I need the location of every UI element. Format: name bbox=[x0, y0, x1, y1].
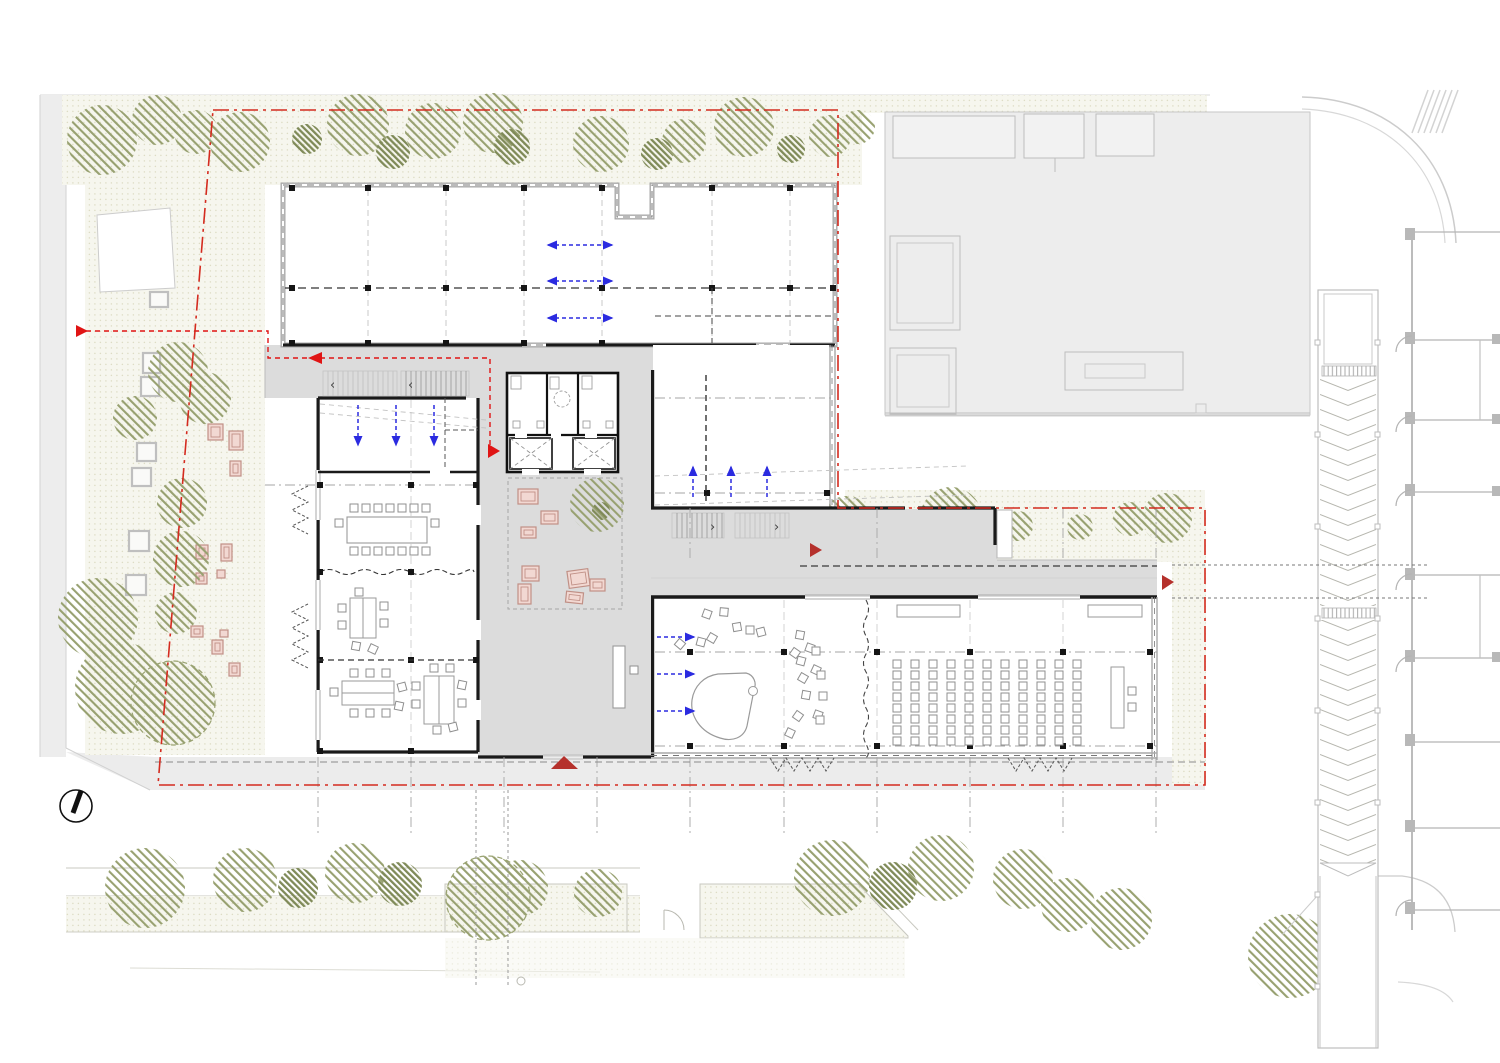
column-marker bbox=[781, 743, 787, 749]
seat bbox=[1055, 737, 1063, 745]
seat bbox=[947, 726, 955, 734]
tree-icon bbox=[494, 129, 530, 165]
column-marker bbox=[824, 490, 830, 496]
outdoor-lounge-furniture bbox=[217, 570, 225, 578]
column-marker bbox=[408, 748, 414, 754]
seat bbox=[965, 671, 973, 679]
column-marker bbox=[709, 185, 715, 191]
seat bbox=[801, 690, 810, 699]
column-marker bbox=[289, 285, 295, 291]
seat bbox=[1055, 715, 1063, 723]
tree-icon bbox=[1090, 888, 1152, 950]
neighbor-building-north bbox=[885, 112, 1310, 416]
column-marker bbox=[874, 743, 880, 749]
outdoor-lounge-furniture bbox=[230, 461, 241, 476]
column-marker bbox=[1147, 743, 1153, 749]
tree-icon bbox=[292, 124, 322, 154]
seat bbox=[374, 504, 382, 512]
stair-direction-arrow: › bbox=[774, 520, 779, 535]
column-marker bbox=[1147, 649, 1153, 655]
seat bbox=[1055, 726, 1063, 734]
seat bbox=[350, 504, 358, 512]
seat bbox=[911, 715, 919, 723]
seat bbox=[1001, 704, 1009, 712]
seat bbox=[382, 709, 390, 717]
seat bbox=[1001, 715, 1009, 723]
outdoor-lounge-furniture bbox=[191, 626, 203, 637]
seat bbox=[965, 715, 973, 723]
tree-icon bbox=[378, 862, 422, 906]
seat bbox=[458, 699, 466, 707]
seat bbox=[382, 669, 390, 677]
conference-table bbox=[347, 517, 427, 543]
seat bbox=[1019, 715, 1027, 723]
seat bbox=[911, 682, 919, 690]
column-marker bbox=[687, 649, 693, 655]
tree-icon bbox=[1142, 493, 1192, 543]
column-marker bbox=[787, 185, 793, 191]
seat bbox=[911, 704, 919, 712]
seat bbox=[893, 693, 901, 701]
seat bbox=[422, 547, 430, 555]
tree-icon bbox=[213, 848, 277, 912]
column-marker bbox=[704, 490, 710, 496]
outdoor-lounge-furniture bbox=[221, 544, 232, 561]
seat bbox=[1001, 671, 1009, 679]
seat bbox=[983, 660, 991, 668]
seat bbox=[1037, 704, 1045, 712]
seat bbox=[397, 682, 407, 692]
seat bbox=[433, 726, 441, 734]
seat bbox=[1001, 660, 1009, 668]
seat bbox=[929, 693, 937, 701]
seat bbox=[929, 715, 937, 723]
tree-icon bbox=[592, 502, 610, 520]
seat bbox=[1019, 704, 1027, 712]
stair-hall-floor bbox=[651, 509, 997, 560]
seat bbox=[1019, 693, 1027, 701]
seat bbox=[1001, 693, 1009, 701]
seat bbox=[965, 682, 973, 690]
tree-icon bbox=[1067, 514, 1093, 540]
seat bbox=[947, 704, 955, 712]
tree-icon bbox=[132, 95, 182, 145]
seat bbox=[893, 726, 901, 734]
tree-icon bbox=[325, 843, 385, 903]
tree-icon bbox=[113, 396, 157, 440]
garden-terrace bbox=[97, 208, 175, 292]
seat bbox=[1019, 671, 1027, 679]
seat bbox=[366, 709, 374, 717]
seat bbox=[965, 737, 973, 745]
tree-icon bbox=[794, 840, 870, 916]
seat bbox=[1073, 660, 1081, 668]
seat bbox=[893, 715, 901, 723]
seat bbox=[350, 709, 358, 717]
site-plan-page: ‹‹›› bbox=[0, 0, 1500, 1063]
seat bbox=[1073, 704, 1081, 712]
seat bbox=[351, 641, 360, 650]
seat bbox=[746, 626, 754, 634]
seat bbox=[338, 604, 346, 612]
tree-icon bbox=[179, 372, 231, 424]
seat bbox=[412, 700, 420, 708]
seat bbox=[1019, 726, 1027, 734]
tree-icon bbox=[153, 531, 209, 587]
architectural-floor-plan: ‹‹›› bbox=[0, 0, 1500, 1063]
seat bbox=[929, 726, 937, 734]
column-marker bbox=[521, 285, 527, 291]
tree-icon bbox=[405, 103, 461, 159]
column-marker bbox=[599, 285, 605, 291]
seat bbox=[1073, 682, 1081, 690]
tree-icon bbox=[67, 105, 137, 175]
column-marker bbox=[874, 649, 880, 655]
seat bbox=[380, 602, 388, 610]
seat bbox=[1001, 682, 1009, 690]
stair-direction-arrow: ‹ bbox=[330, 378, 335, 393]
reception-desk bbox=[613, 646, 625, 708]
seat bbox=[448, 722, 458, 732]
seat bbox=[983, 693, 991, 701]
tree-icon bbox=[278, 868, 318, 908]
seat bbox=[696, 637, 706, 647]
column-marker bbox=[473, 482, 479, 488]
outdoor-lounge-furniture bbox=[212, 640, 223, 654]
toilet-elevator-core bbox=[507, 373, 618, 475]
planter-box bbox=[126, 575, 146, 595]
column-marker bbox=[1060, 649, 1066, 655]
outdoor-lounge-furniture bbox=[565, 591, 583, 604]
column-marker bbox=[599, 185, 605, 191]
side-vestibule bbox=[997, 510, 1012, 558]
planter-box bbox=[129, 531, 149, 551]
tree-icon bbox=[210, 112, 270, 172]
seat bbox=[386, 547, 394, 555]
seat bbox=[1055, 660, 1063, 668]
seat bbox=[796, 656, 806, 666]
tree-icon bbox=[105, 848, 185, 928]
seat bbox=[1019, 660, 1027, 668]
tree-icon bbox=[662, 119, 706, 163]
seat bbox=[893, 704, 901, 712]
podium-table bbox=[1111, 667, 1124, 728]
seat bbox=[335, 519, 343, 527]
column-marker bbox=[408, 482, 414, 488]
seat bbox=[1055, 682, 1063, 690]
outdoor-lounge-furniture bbox=[518, 584, 531, 604]
road-hatch-marks bbox=[1412, 90, 1458, 133]
seat bbox=[394, 701, 403, 710]
planter-box bbox=[132, 468, 151, 486]
structural-columns-east bbox=[1405, 228, 1500, 914]
piano-stool bbox=[749, 687, 758, 696]
seat bbox=[1128, 703, 1136, 711]
seat bbox=[947, 660, 955, 668]
seat bbox=[947, 682, 955, 690]
seat bbox=[965, 693, 973, 701]
outdoor-lounge-furniture bbox=[229, 663, 240, 676]
stair-direction-arrow: ‹ bbox=[408, 378, 413, 393]
seat bbox=[929, 671, 937, 679]
tree-icon bbox=[574, 869, 622, 917]
seat bbox=[983, 726, 991, 734]
seat bbox=[983, 671, 991, 679]
column-marker bbox=[317, 748, 323, 754]
seat bbox=[983, 682, 991, 690]
seat bbox=[1073, 726, 1081, 734]
seat bbox=[1073, 715, 1081, 723]
seat bbox=[410, 547, 418, 555]
seat bbox=[947, 715, 955, 723]
seat bbox=[355, 588, 363, 596]
seat bbox=[929, 737, 937, 745]
seat bbox=[947, 671, 955, 679]
seat bbox=[1073, 671, 1081, 679]
seat bbox=[350, 669, 358, 677]
outdoor-lounge-furniture bbox=[220, 630, 228, 637]
tree-icon bbox=[376, 135, 410, 169]
column-marker bbox=[317, 569, 323, 575]
seat bbox=[756, 627, 766, 637]
seat bbox=[1037, 682, 1045, 690]
seat bbox=[1055, 704, 1063, 712]
seat bbox=[362, 547, 370, 555]
column-marker bbox=[443, 340, 449, 346]
seat bbox=[1037, 693, 1045, 701]
tree-icon bbox=[777, 135, 805, 163]
west-glazing bbox=[315, 470, 321, 740]
column-marker bbox=[781, 649, 787, 655]
seat bbox=[1128, 687, 1136, 695]
seat bbox=[366, 669, 374, 677]
seat bbox=[983, 704, 991, 712]
seat bbox=[386, 504, 394, 512]
tree-icon bbox=[157, 478, 207, 528]
outdoor-lounge-furniture bbox=[567, 569, 590, 589]
outdoor-lounge-furniture bbox=[541, 511, 558, 524]
seat bbox=[410, 504, 418, 512]
seat bbox=[1001, 737, 1009, 745]
existing-building-east bbox=[1396, 228, 1500, 930]
seat bbox=[431, 519, 439, 527]
tree-icon bbox=[841, 110, 875, 144]
storage-cabinet bbox=[1088, 605, 1142, 617]
seat bbox=[983, 737, 991, 745]
column-marker bbox=[317, 482, 323, 488]
seat bbox=[1037, 737, 1045, 745]
outdoor-lounge-furniture bbox=[522, 566, 539, 581]
seat bbox=[398, 547, 406, 555]
seat bbox=[795, 630, 804, 639]
column-marker bbox=[830, 285, 836, 291]
seat bbox=[911, 671, 919, 679]
column-marker bbox=[443, 185, 449, 191]
seat bbox=[1073, 693, 1081, 701]
column-marker bbox=[443, 285, 449, 291]
seat bbox=[812, 647, 820, 655]
seat bbox=[732, 622, 741, 631]
seat bbox=[911, 737, 919, 745]
seat bbox=[1037, 671, 1045, 679]
outdoor-lounge-furniture bbox=[229, 431, 243, 450]
seat bbox=[1019, 682, 1027, 690]
seat bbox=[422, 504, 430, 512]
seat bbox=[965, 704, 973, 712]
seat bbox=[1001, 726, 1009, 734]
seat bbox=[947, 693, 955, 701]
column-marker bbox=[687, 743, 693, 749]
seat bbox=[380, 619, 388, 627]
seat bbox=[330, 688, 338, 696]
seat bbox=[893, 660, 901, 668]
stair-direction-arrow: › bbox=[710, 520, 715, 535]
seat bbox=[911, 693, 919, 701]
seat bbox=[965, 660, 973, 668]
top-hall bbox=[283, 185, 835, 345]
tree-icon bbox=[1041, 878, 1095, 932]
seat bbox=[893, 682, 901, 690]
seat bbox=[457, 680, 466, 689]
north-arrow-icon bbox=[60, 790, 92, 822]
seat bbox=[911, 660, 919, 668]
seat bbox=[819, 692, 827, 700]
seat bbox=[1055, 671, 1063, 679]
seat bbox=[911, 726, 919, 734]
seat bbox=[1037, 715, 1045, 723]
tree-icon bbox=[908, 835, 974, 901]
seat bbox=[929, 660, 937, 668]
tree-icon bbox=[573, 116, 629, 172]
column-marker bbox=[521, 340, 527, 346]
seat bbox=[412, 682, 420, 690]
column-marker bbox=[967, 649, 973, 655]
seat bbox=[1019, 737, 1027, 745]
planter-box bbox=[150, 292, 168, 307]
seat bbox=[446, 664, 454, 672]
storage-cabinet bbox=[897, 605, 960, 617]
column-marker bbox=[365, 285, 371, 291]
seat bbox=[929, 704, 937, 712]
seat bbox=[817, 671, 825, 679]
outdoor-lounge-furniture bbox=[208, 424, 223, 440]
entry-chevron bbox=[292, 604, 308, 668]
indoor-tree bbox=[570, 478, 624, 532]
column-marker bbox=[599, 340, 605, 346]
seat bbox=[1055, 693, 1063, 701]
seat bbox=[893, 671, 901, 679]
seat bbox=[1073, 737, 1081, 745]
seat bbox=[350, 547, 358, 555]
seat bbox=[816, 716, 824, 724]
seat bbox=[338, 621, 346, 629]
column-marker bbox=[365, 340, 371, 346]
seat bbox=[893, 737, 901, 745]
column-marker bbox=[408, 569, 414, 575]
seat bbox=[983, 715, 991, 723]
column-marker bbox=[289, 340, 295, 346]
seat bbox=[929, 682, 937, 690]
seat bbox=[630, 666, 638, 674]
seat bbox=[398, 504, 406, 512]
seat bbox=[965, 726, 973, 734]
column-marker bbox=[787, 285, 793, 291]
seat bbox=[430, 664, 438, 672]
tree-icon bbox=[714, 97, 774, 157]
column-marker bbox=[289, 185, 295, 191]
seat bbox=[720, 608, 729, 617]
outdoor-lounge-furniture bbox=[518, 489, 538, 504]
planter-box bbox=[137, 443, 156, 461]
entry-chevron bbox=[292, 486, 308, 534]
seat bbox=[374, 547, 382, 555]
seat bbox=[1037, 660, 1045, 668]
tree-icon bbox=[1113, 502, 1147, 536]
seat bbox=[947, 737, 955, 745]
outdoor-lounge-furniture bbox=[521, 527, 536, 538]
outdoor-lounge-furniture bbox=[590, 579, 605, 591]
column-marker bbox=[521, 185, 527, 191]
seat bbox=[1037, 726, 1045, 734]
column-marker bbox=[365, 185, 371, 191]
tree-icon bbox=[155, 592, 197, 634]
seat bbox=[362, 504, 370, 512]
